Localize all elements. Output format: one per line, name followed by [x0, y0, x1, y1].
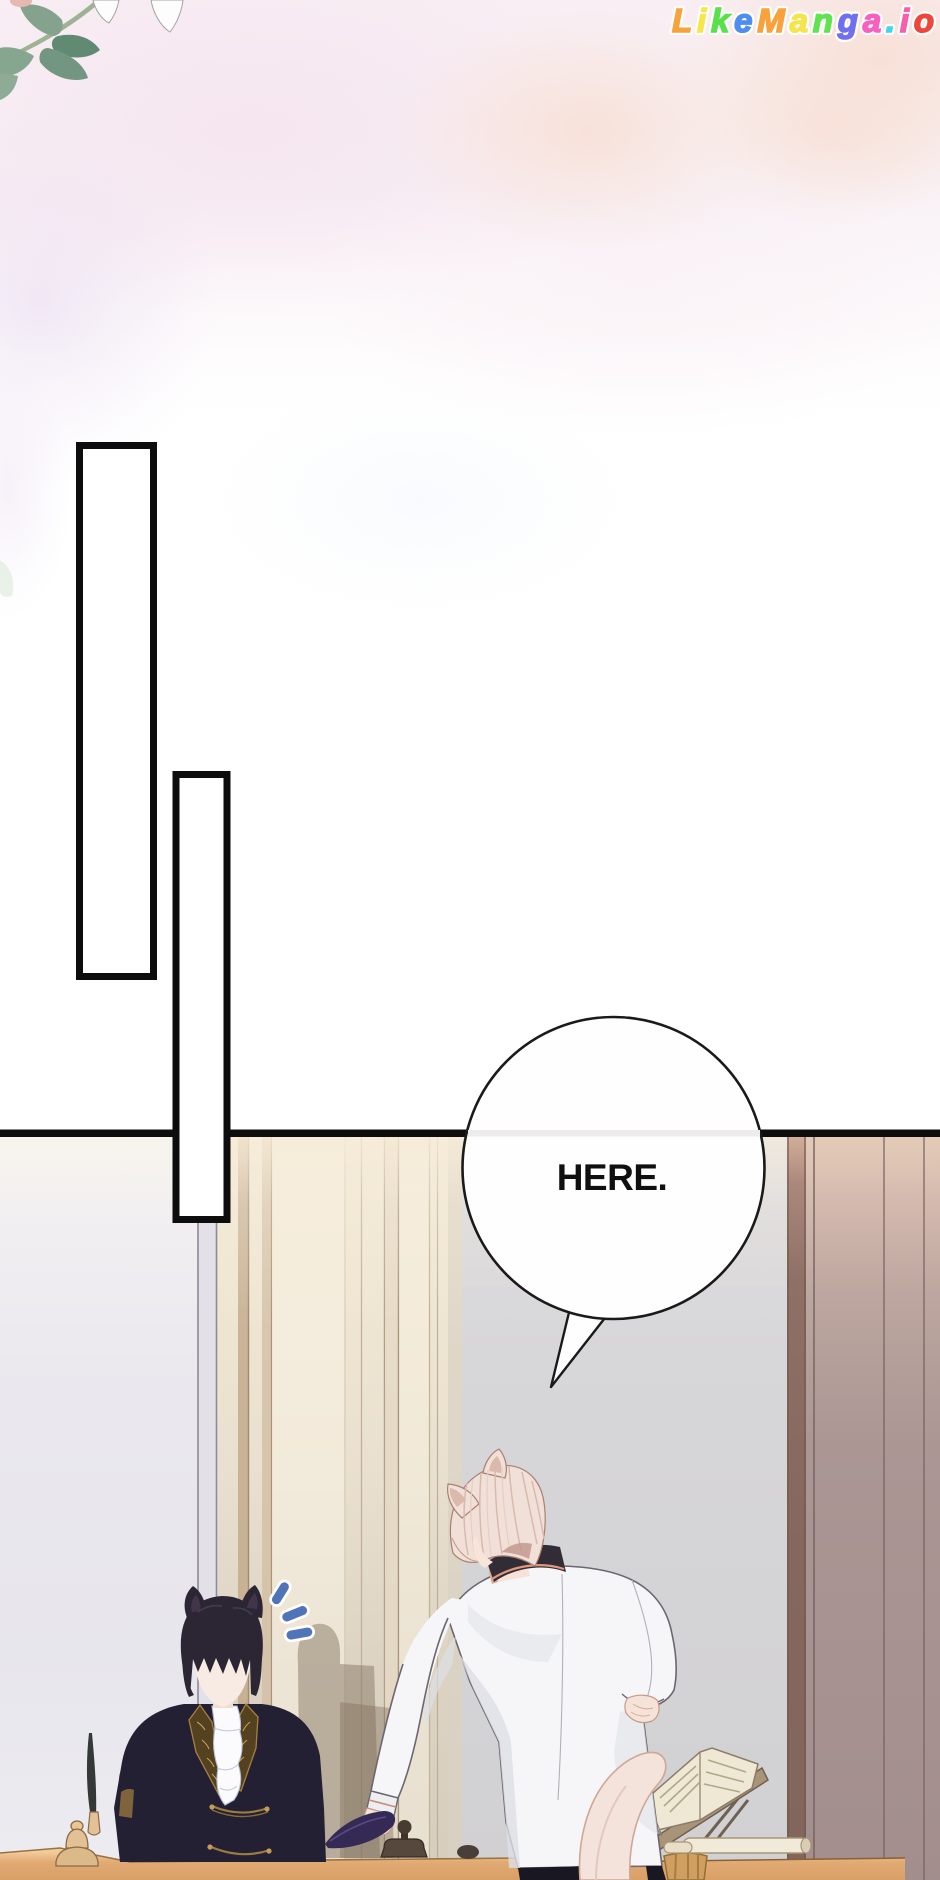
svg-text:LikeManga.io: LikeManga.io: [672, 2, 934, 39]
svg-text:HERE.: HERE.: [557, 1157, 668, 1198]
